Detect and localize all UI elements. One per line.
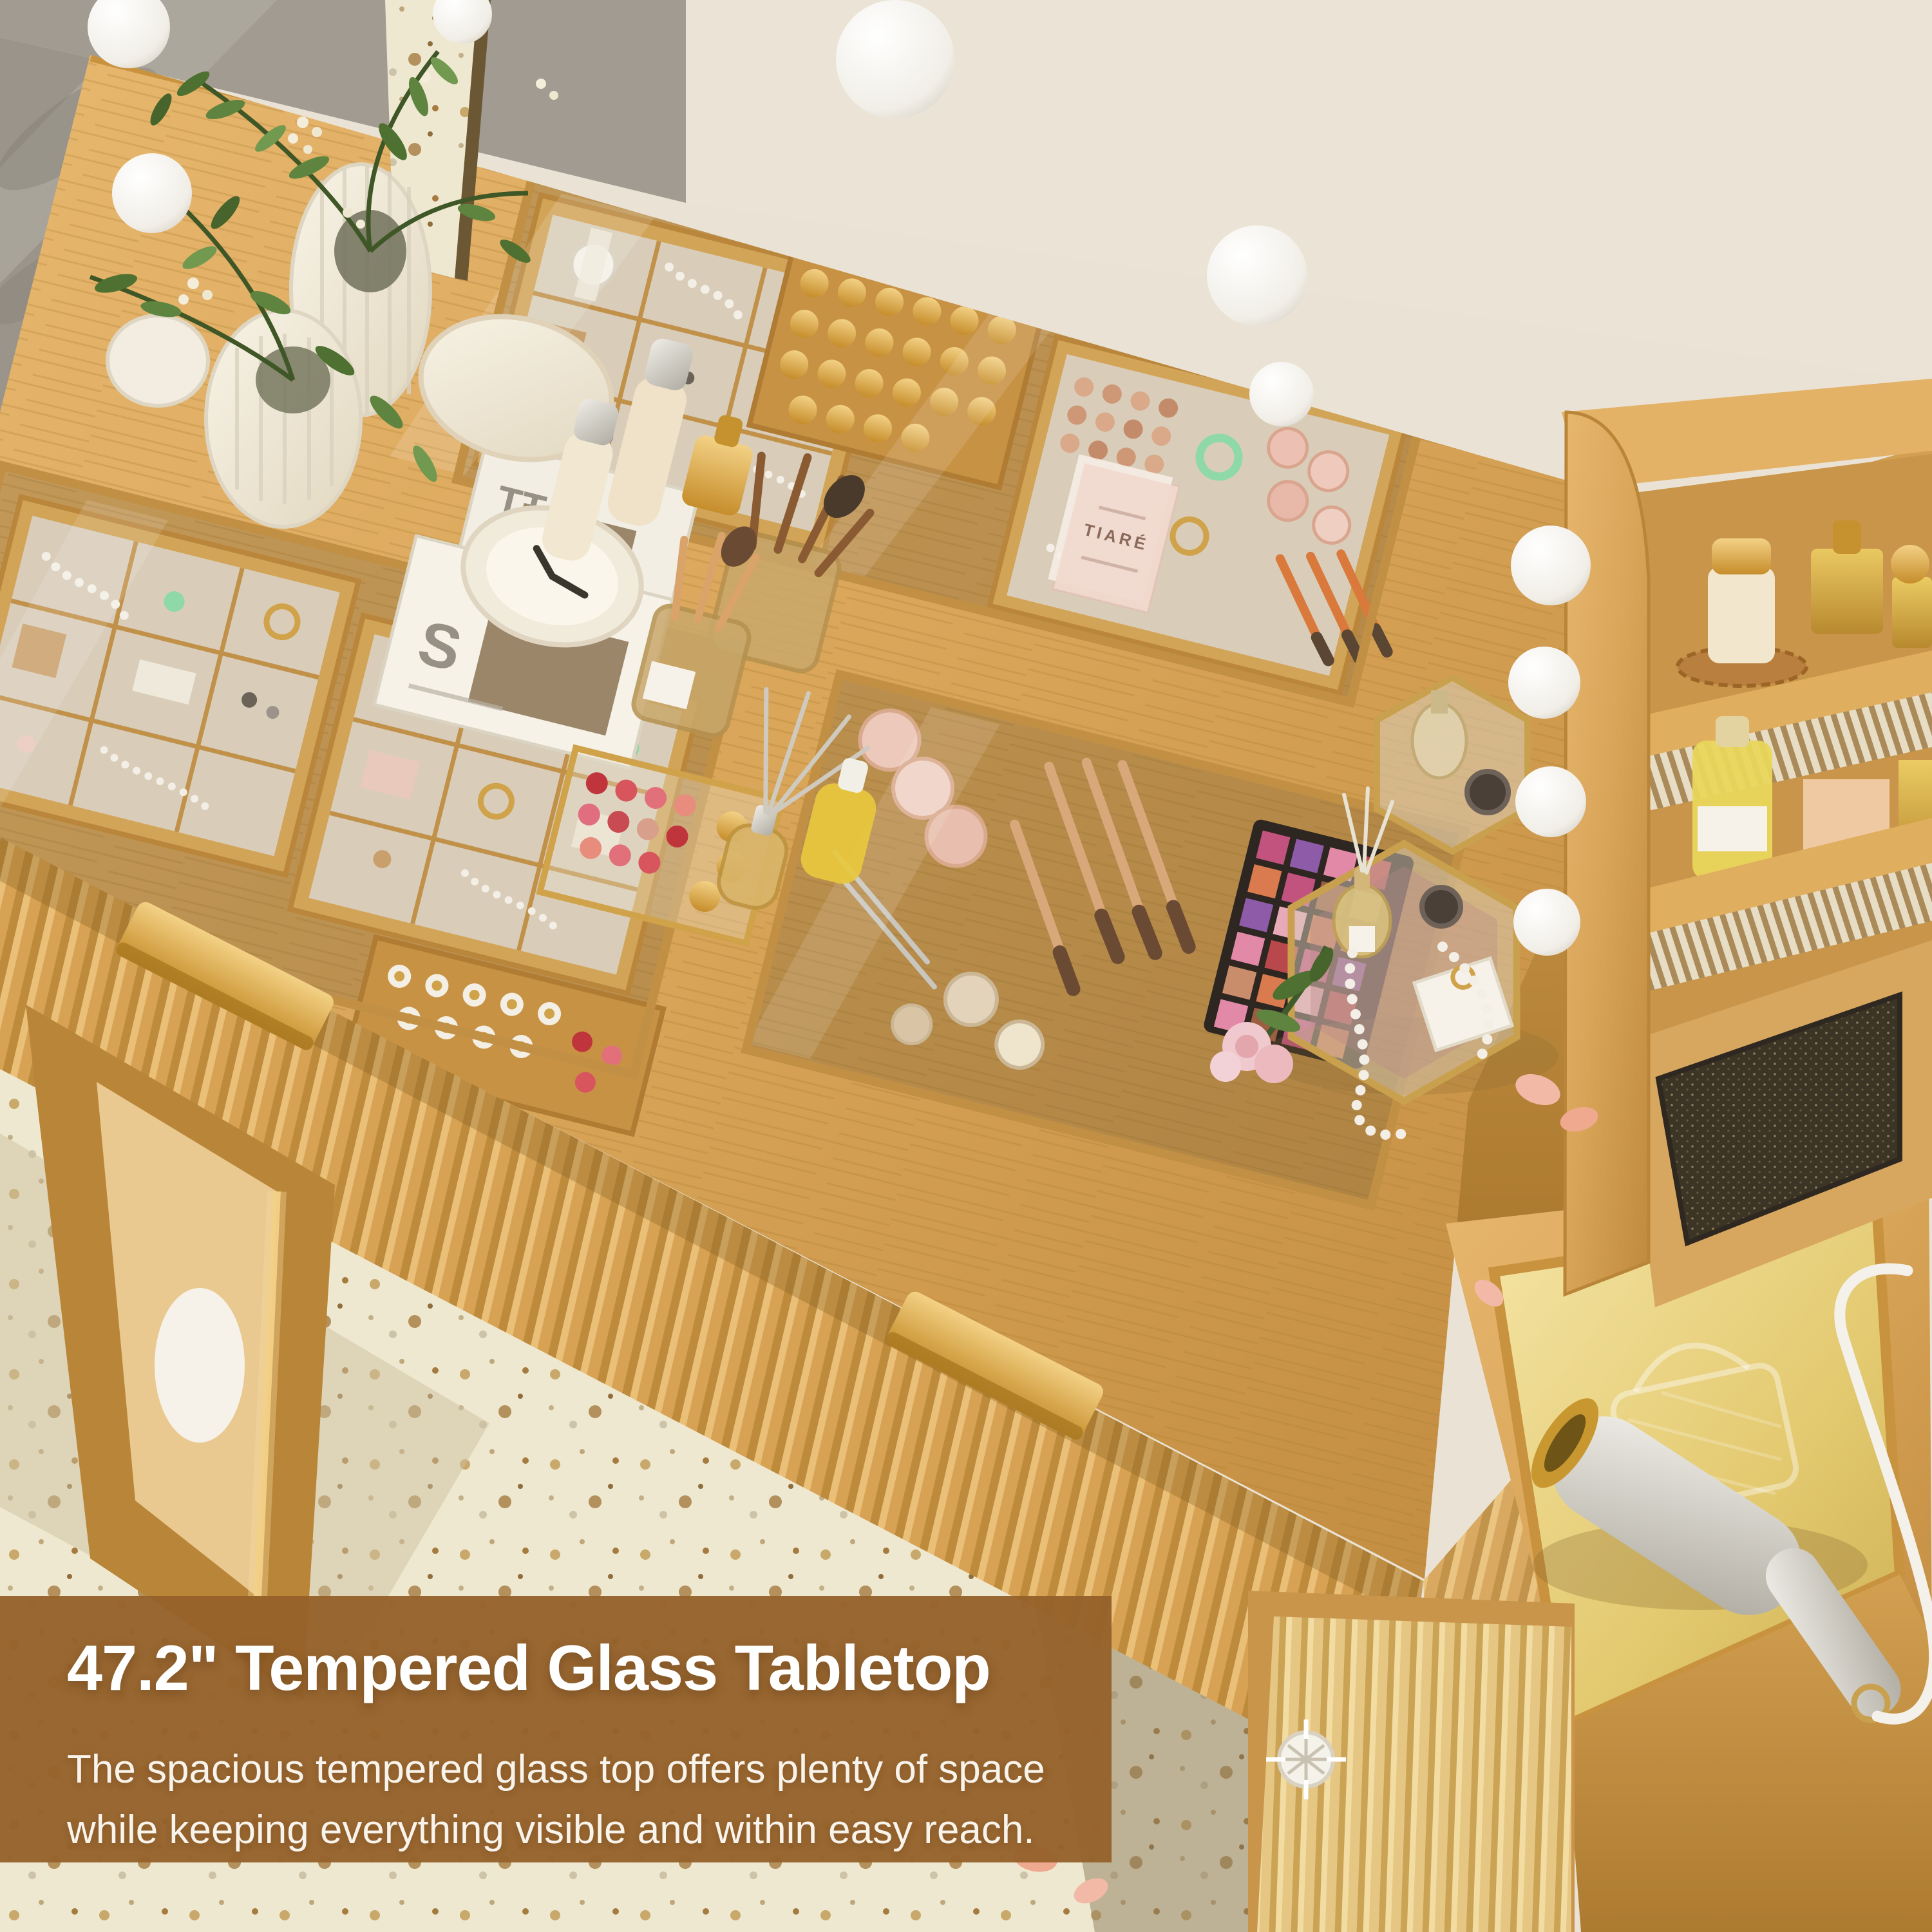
bulb [1511, 526, 1591, 605]
bulb [1515, 766, 1586, 837]
feature-callout-panel: 47.2" Tempered Glass Tabletop The spacio… [0, 1596, 1112, 1862]
diffuser-label [1349, 926, 1375, 952]
feature-description-line-2: while keeping everything visible and wit… [67, 1800, 1060, 1861]
reflected-bin [155, 1288, 245, 1443]
amber-bottle-2 [1892, 577, 1932, 648]
gold-cap [1891, 545, 1929, 583]
bulb [1508, 647, 1580, 719]
candle [1467, 772, 1508, 813]
amber-cap [1833, 520, 1861, 554]
bottle-label [1698, 806, 1767, 851]
feature-heading: 47.2" Tempered Glass Tabletop [67, 1631, 1060, 1706]
feature-description-line-1: The spacious tempered glass top offers p… [67, 1739, 1060, 1800]
hexagon-tray-upper [1377, 677, 1528, 851]
cream-jar [1708, 567, 1775, 663]
small-vase [108, 316, 208, 406]
ribbed-vase-back [206, 310, 361, 527]
feature-description: The spacious tempered glass top offers p… [67, 1739, 1060, 1861]
candle [1422, 887, 1461, 926]
right-cabinet [1562, 379, 1932, 1307]
bulb [1513, 889, 1580, 956]
bulb [1249, 362, 1314, 426]
bulb [836, 0, 954, 118]
jar-gold-lid [1712, 538, 1771, 574]
bulb [112, 153, 192, 233]
amber-bottle [1811, 549, 1883, 634]
product-marketing-image: TIARÉ [0, 0, 1932, 1932]
bulb [1207, 225, 1307, 326]
bottle-cap [1716, 716, 1749, 747]
lower-cabinet [1248, 1591, 1575, 1932]
